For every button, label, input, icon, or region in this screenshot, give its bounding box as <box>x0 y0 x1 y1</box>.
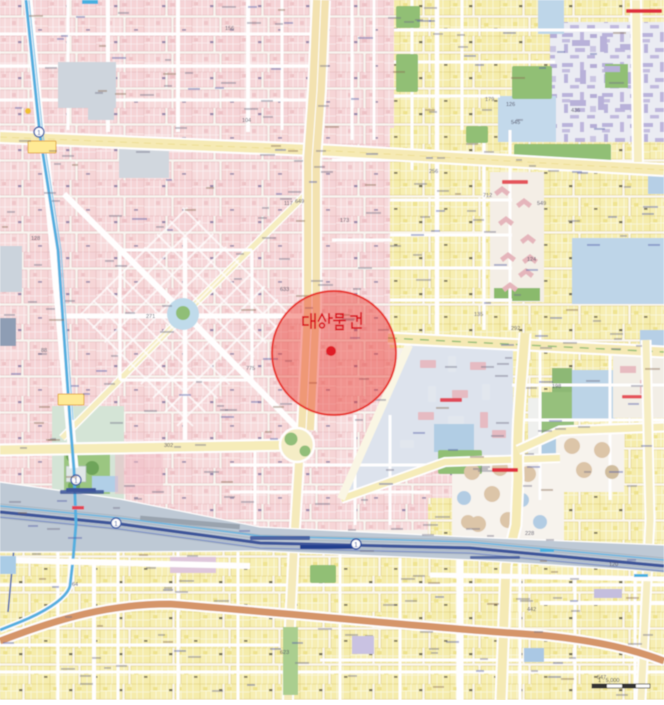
svg-text:1: 1 <box>354 542 358 549</box>
svg-text:1 : 5,000: 1 : 5,000 <box>598 678 619 684</box>
